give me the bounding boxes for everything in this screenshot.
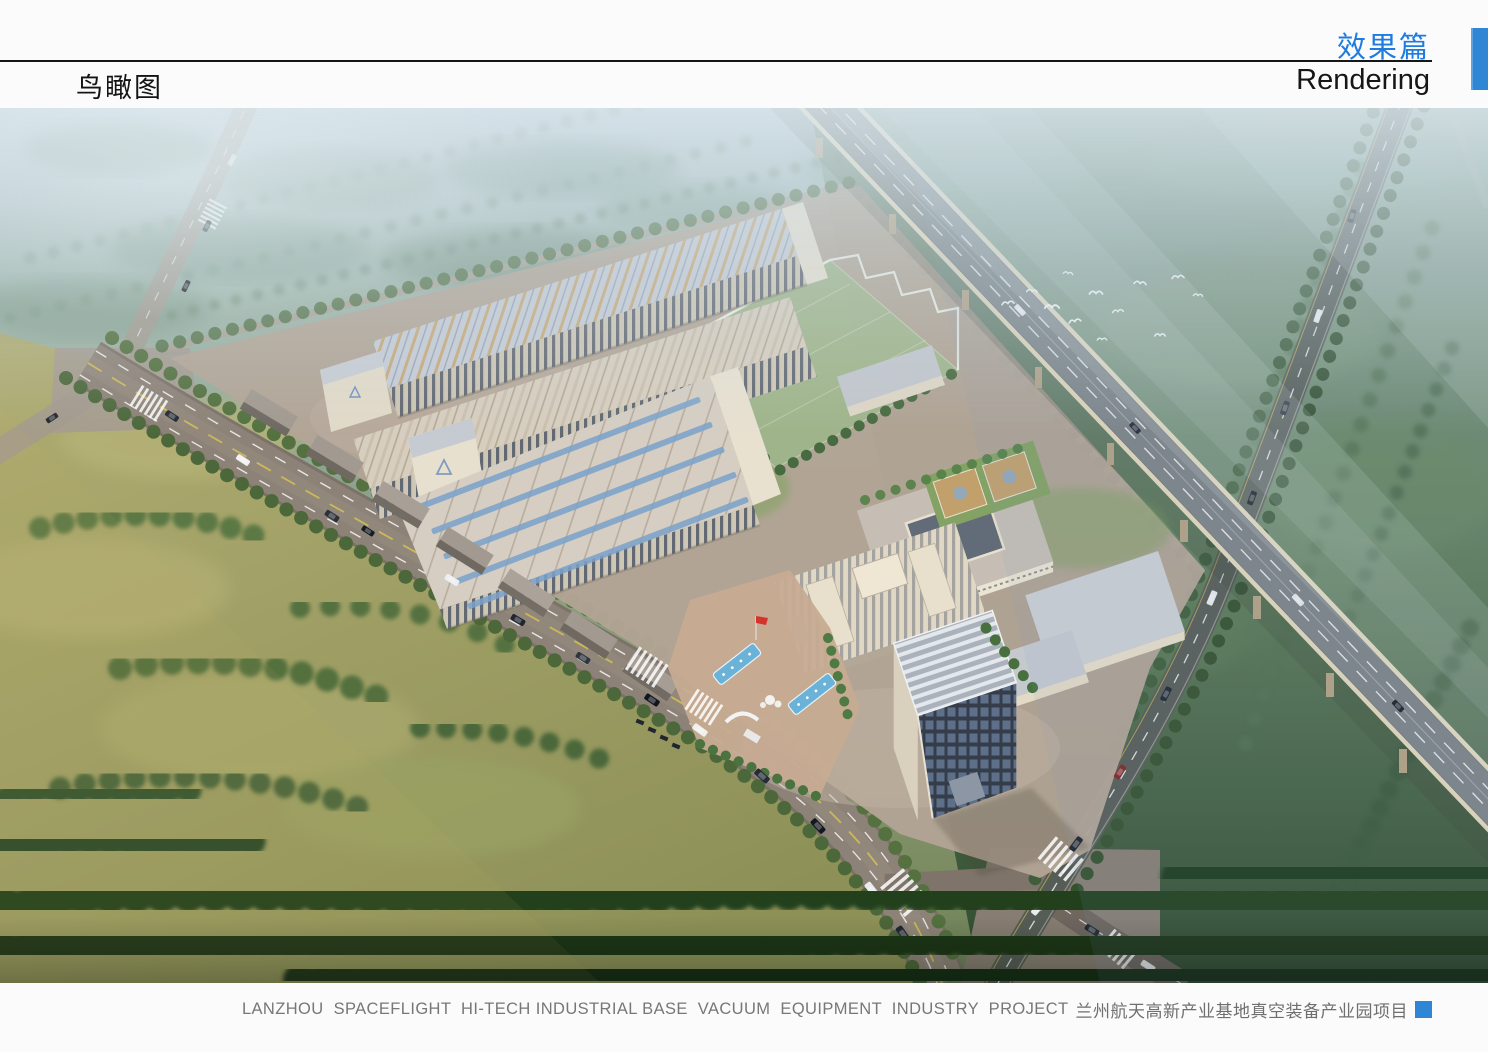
page-title: 鸟瞰图 [76, 66, 163, 105]
album-title-en: Rendering [1296, 64, 1430, 97]
album-title-zh: 效果篇 [1337, 24, 1430, 66]
aerial-rendering-image [0, 108, 1488, 983]
header-rule [0, 60, 1432, 62]
footer-caption-en: LANZHOU SPACEFLIGHT HI-TECH INDUSTRIAL B… [242, 1000, 1069, 1019]
aerial-rendering-figure [0, 108, 1488, 983]
footer-caption: LANZHOU SPACEFLIGHT HI-TECH INDUSTRIAL B… [242, 997, 1432, 1022]
footer-accent-square [1415, 1001, 1432, 1018]
header-accent-tab [1471, 28, 1488, 90]
footer-caption-zh: 兰州航天高新产业基地真空装备产业园项目 [1076, 997, 1409, 1022]
